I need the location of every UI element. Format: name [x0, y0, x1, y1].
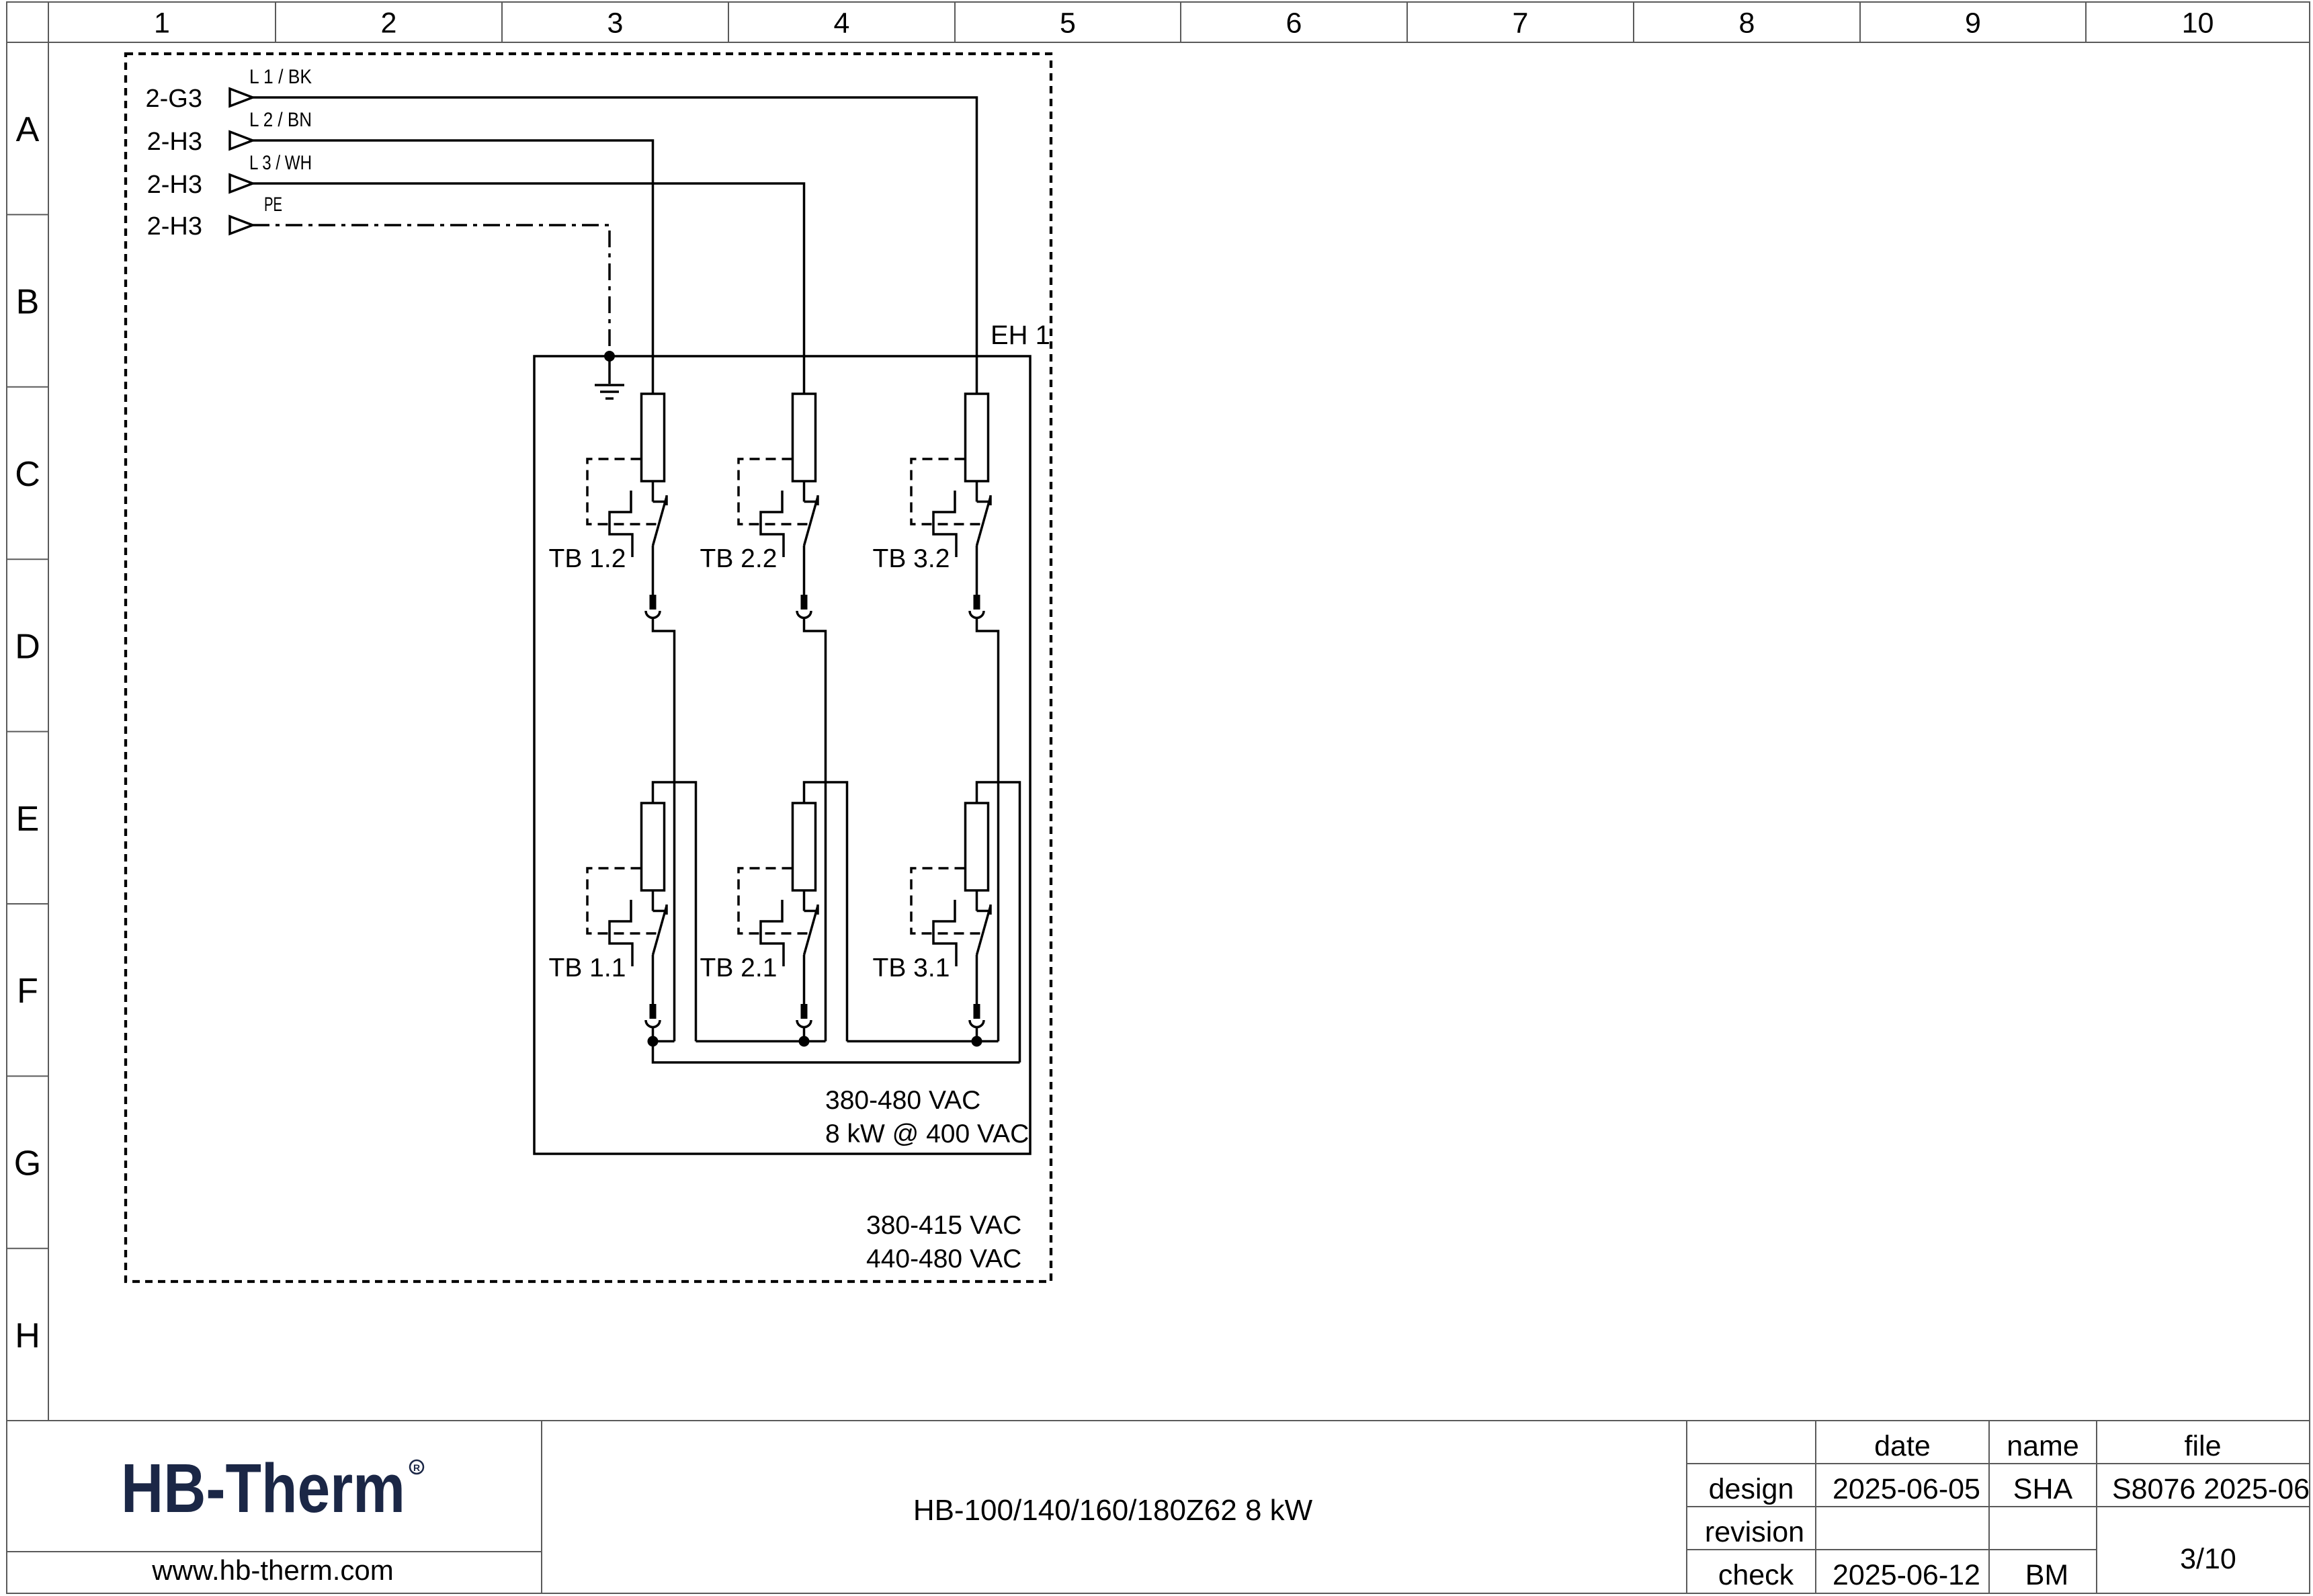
svg-text:S8076 2025-06: S8076 2025-06 — [2112, 1473, 2310, 1505]
svg-text:2: 2 — [381, 7, 397, 40]
svg-text:3/10: 3/10 — [2180, 1543, 2236, 1575]
svg-text:date: date — [1874, 1430, 1931, 1462]
svg-text:F: F — [17, 972, 38, 1011]
svg-text:E: E — [16, 800, 40, 839]
svg-text:file: file — [2185, 1430, 2222, 1462]
svg-text:2-H3: 2-H3 — [147, 212, 202, 241]
svg-text:380-480 VAC: 380-480 VAC — [825, 1086, 980, 1115]
svg-text:TB 1.1: TB 1.1 — [549, 954, 626, 982]
svg-text:PE: PE — [264, 194, 282, 216]
svg-text:2-G3: 2-G3 — [146, 85, 202, 113]
svg-text:HB-100/140/160/180Z62 8 kW: HB-100/140/160/180Z62 8 kW — [913, 1494, 1313, 1527]
svg-text:TB 2.2: TB 2.2 — [700, 544, 777, 573]
svg-text:L 1 / BK: L 1 / BK — [249, 66, 312, 88]
svg-text:BM: BM — [2025, 1559, 2069, 1591]
svg-text:10: 10 — [2182, 7, 2214, 40]
svg-text:HB-Therm: HB-Therm — [121, 1450, 405, 1527]
svg-text:380-415 VAC: 380-415 VAC — [866, 1211, 1021, 1240]
svg-text:2-H3: 2-H3 — [147, 128, 202, 156]
svg-text:1: 1 — [154, 7, 170, 40]
svg-text:EH 1: EH 1 — [991, 321, 1050, 350]
svg-text:2025-06-12: 2025-06-12 — [1833, 1559, 1980, 1591]
svg-text:G: G — [14, 1144, 41, 1183]
svg-text:C: C — [15, 455, 40, 494]
svg-text:revision: revision — [1705, 1516, 1804, 1548]
svg-text:TB 3.2: TB 3.2 — [873, 544, 950, 573]
svg-text:B: B — [16, 283, 40, 322]
svg-text:2-H3: 2-H3 — [147, 171, 202, 199]
svg-text:8 kW @ 400 VAC: 8 kW @ 400 VAC — [825, 1120, 1029, 1148]
svg-text:TB 1.2: TB 1.2 — [549, 544, 626, 573]
svg-text:A: A — [16, 110, 40, 149]
svg-text:H: H — [15, 1316, 40, 1355]
svg-text:www.hb-therm.com: www.hb-therm.com — [151, 1554, 393, 1586]
svg-text:3: 3 — [607, 7, 624, 40]
svg-text:L 3 / WH: L 3 / WH — [249, 152, 312, 174]
svg-text:L 2 / BN: L 2 / BN — [249, 109, 312, 131]
svg-text:check: check — [1718, 1559, 1794, 1591]
svg-text:5: 5 — [1060, 7, 1076, 40]
svg-text:7: 7 — [1513, 7, 1529, 40]
svg-text:TB 3.1: TB 3.1 — [873, 954, 950, 982]
svg-text:SHA: SHA — [2013, 1473, 2073, 1505]
svg-text:8: 8 — [1739, 7, 1755, 40]
svg-text:9: 9 — [1965, 7, 1981, 40]
svg-text:440-480 VAC: 440-480 VAC — [866, 1245, 1021, 1273]
svg-text:design: design — [1709, 1473, 1794, 1505]
svg-text:6: 6 — [1286, 7, 1302, 40]
svg-text:TB 2.1: TB 2.1 — [700, 954, 777, 982]
svg-text:4: 4 — [834, 7, 850, 40]
svg-text:D: D — [15, 627, 40, 666]
svg-text:R: R — [413, 1462, 420, 1473]
svg-text:2025-06-05: 2025-06-05 — [1833, 1473, 1980, 1505]
svg-text:name: name — [2007, 1430, 2079, 1462]
